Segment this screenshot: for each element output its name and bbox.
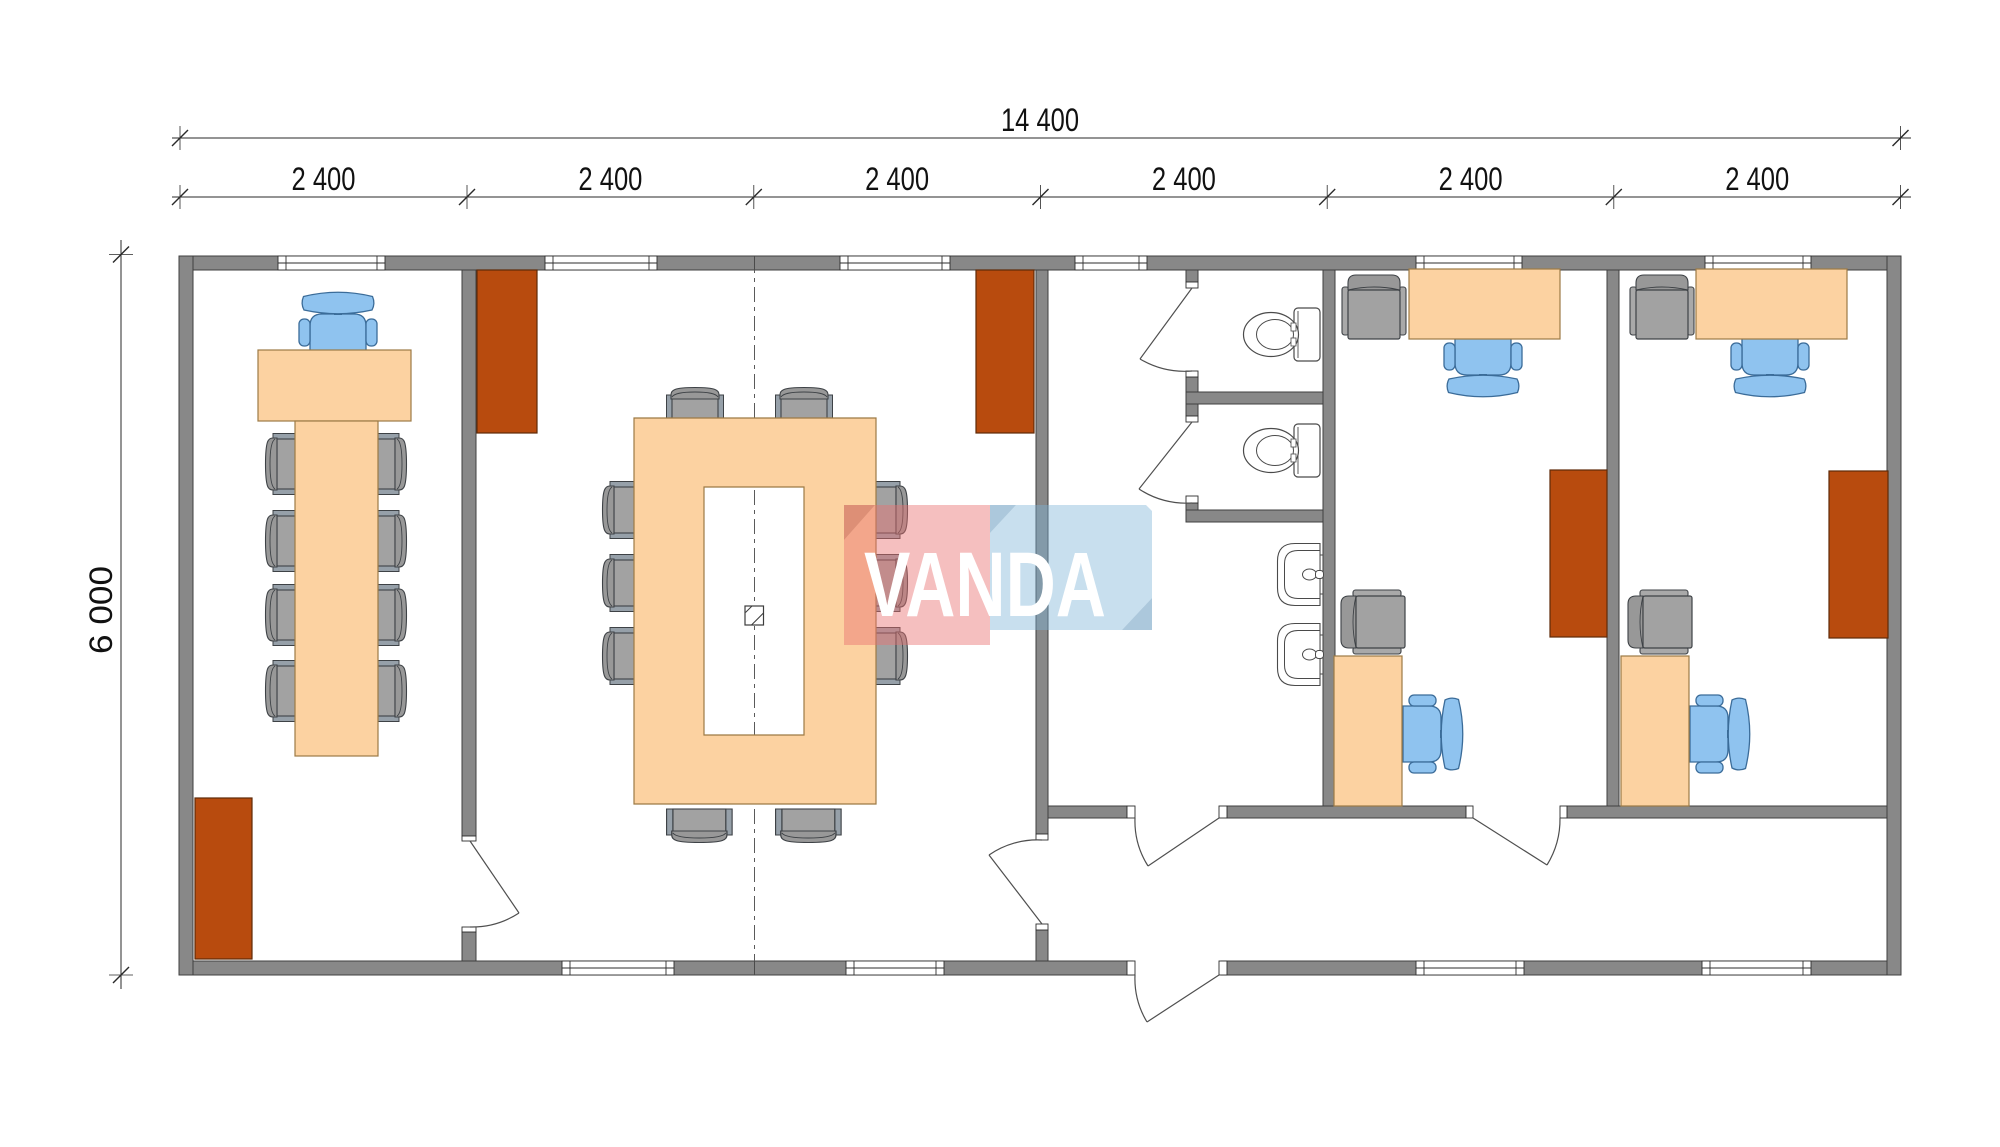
svg-text:14 400: 14 400 <box>1001 102 1079 138</box>
svg-text:2 400: 2 400 <box>292 161 356 197</box>
svg-text:6 000: 6 000 <box>83 566 119 654</box>
svg-text:2 400: 2 400 <box>865 161 929 197</box>
svg-text:2 400: 2 400 <box>578 161 642 197</box>
svg-text:2 400: 2 400 <box>1725 161 1789 197</box>
svg-text:2 400: 2 400 <box>1439 161 1503 197</box>
svg-text:2 400: 2 400 <box>1152 161 1216 197</box>
svg-text:VANDA: VANDA <box>864 534 1106 636</box>
